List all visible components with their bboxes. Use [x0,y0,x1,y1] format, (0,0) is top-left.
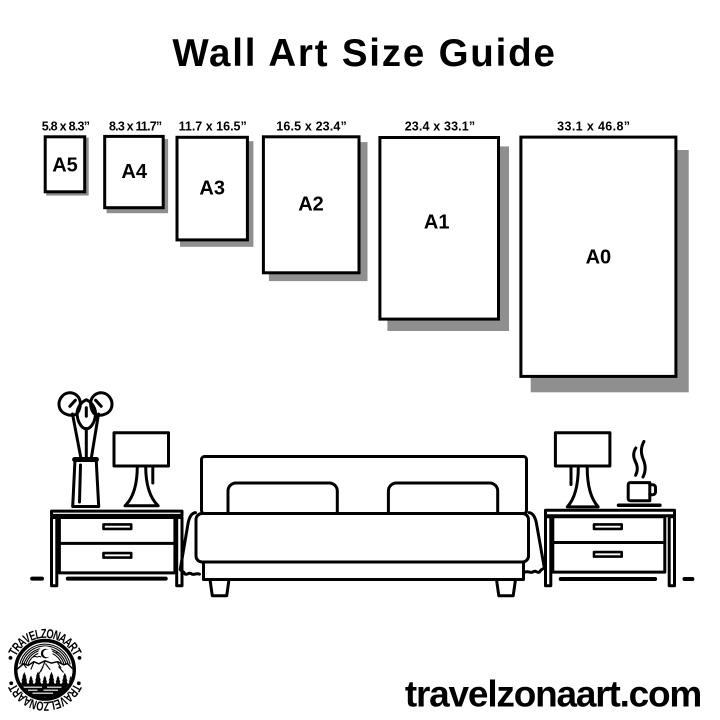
svg-text:A0: A0 [586,246,612,268]
svg-text:A5: A5 [52,155,78,177]
svg-text:A2: A2 [298,193,324,215]
svg-text:A4: A4 [121,161,147,183]
svg-text:5.8 x 8.3”: 5.8 x 8.3” [42,119,90,133]
svg-text:8.3 x 11.7”: 8.3 x 11.7” [109,119,162,133]
svg-text:Wall Art Size Guide: Wall Art Size Guide [172,32,556,75]
svg-text:23.4 x 33.1”: 23.4 x 33.1” [405,119,476,133]
svg-text:11.7 x 16.5”: 11.7 x 16.5” [179,119,247,133]
svg-text:33.1 x 46.8”: 33.1 x 46.8” [557,119,630,133]
svg-text:A3: A3 [199,178,225,200]
svg-text:A1: A1 [424,211,450,233]
svg-text:travelzonaart.com: travelzonaart.com [405,674,701,715]
svg-text:16.5 x 23.4”: 16.5 x 23.4” [276,119,347,133]
